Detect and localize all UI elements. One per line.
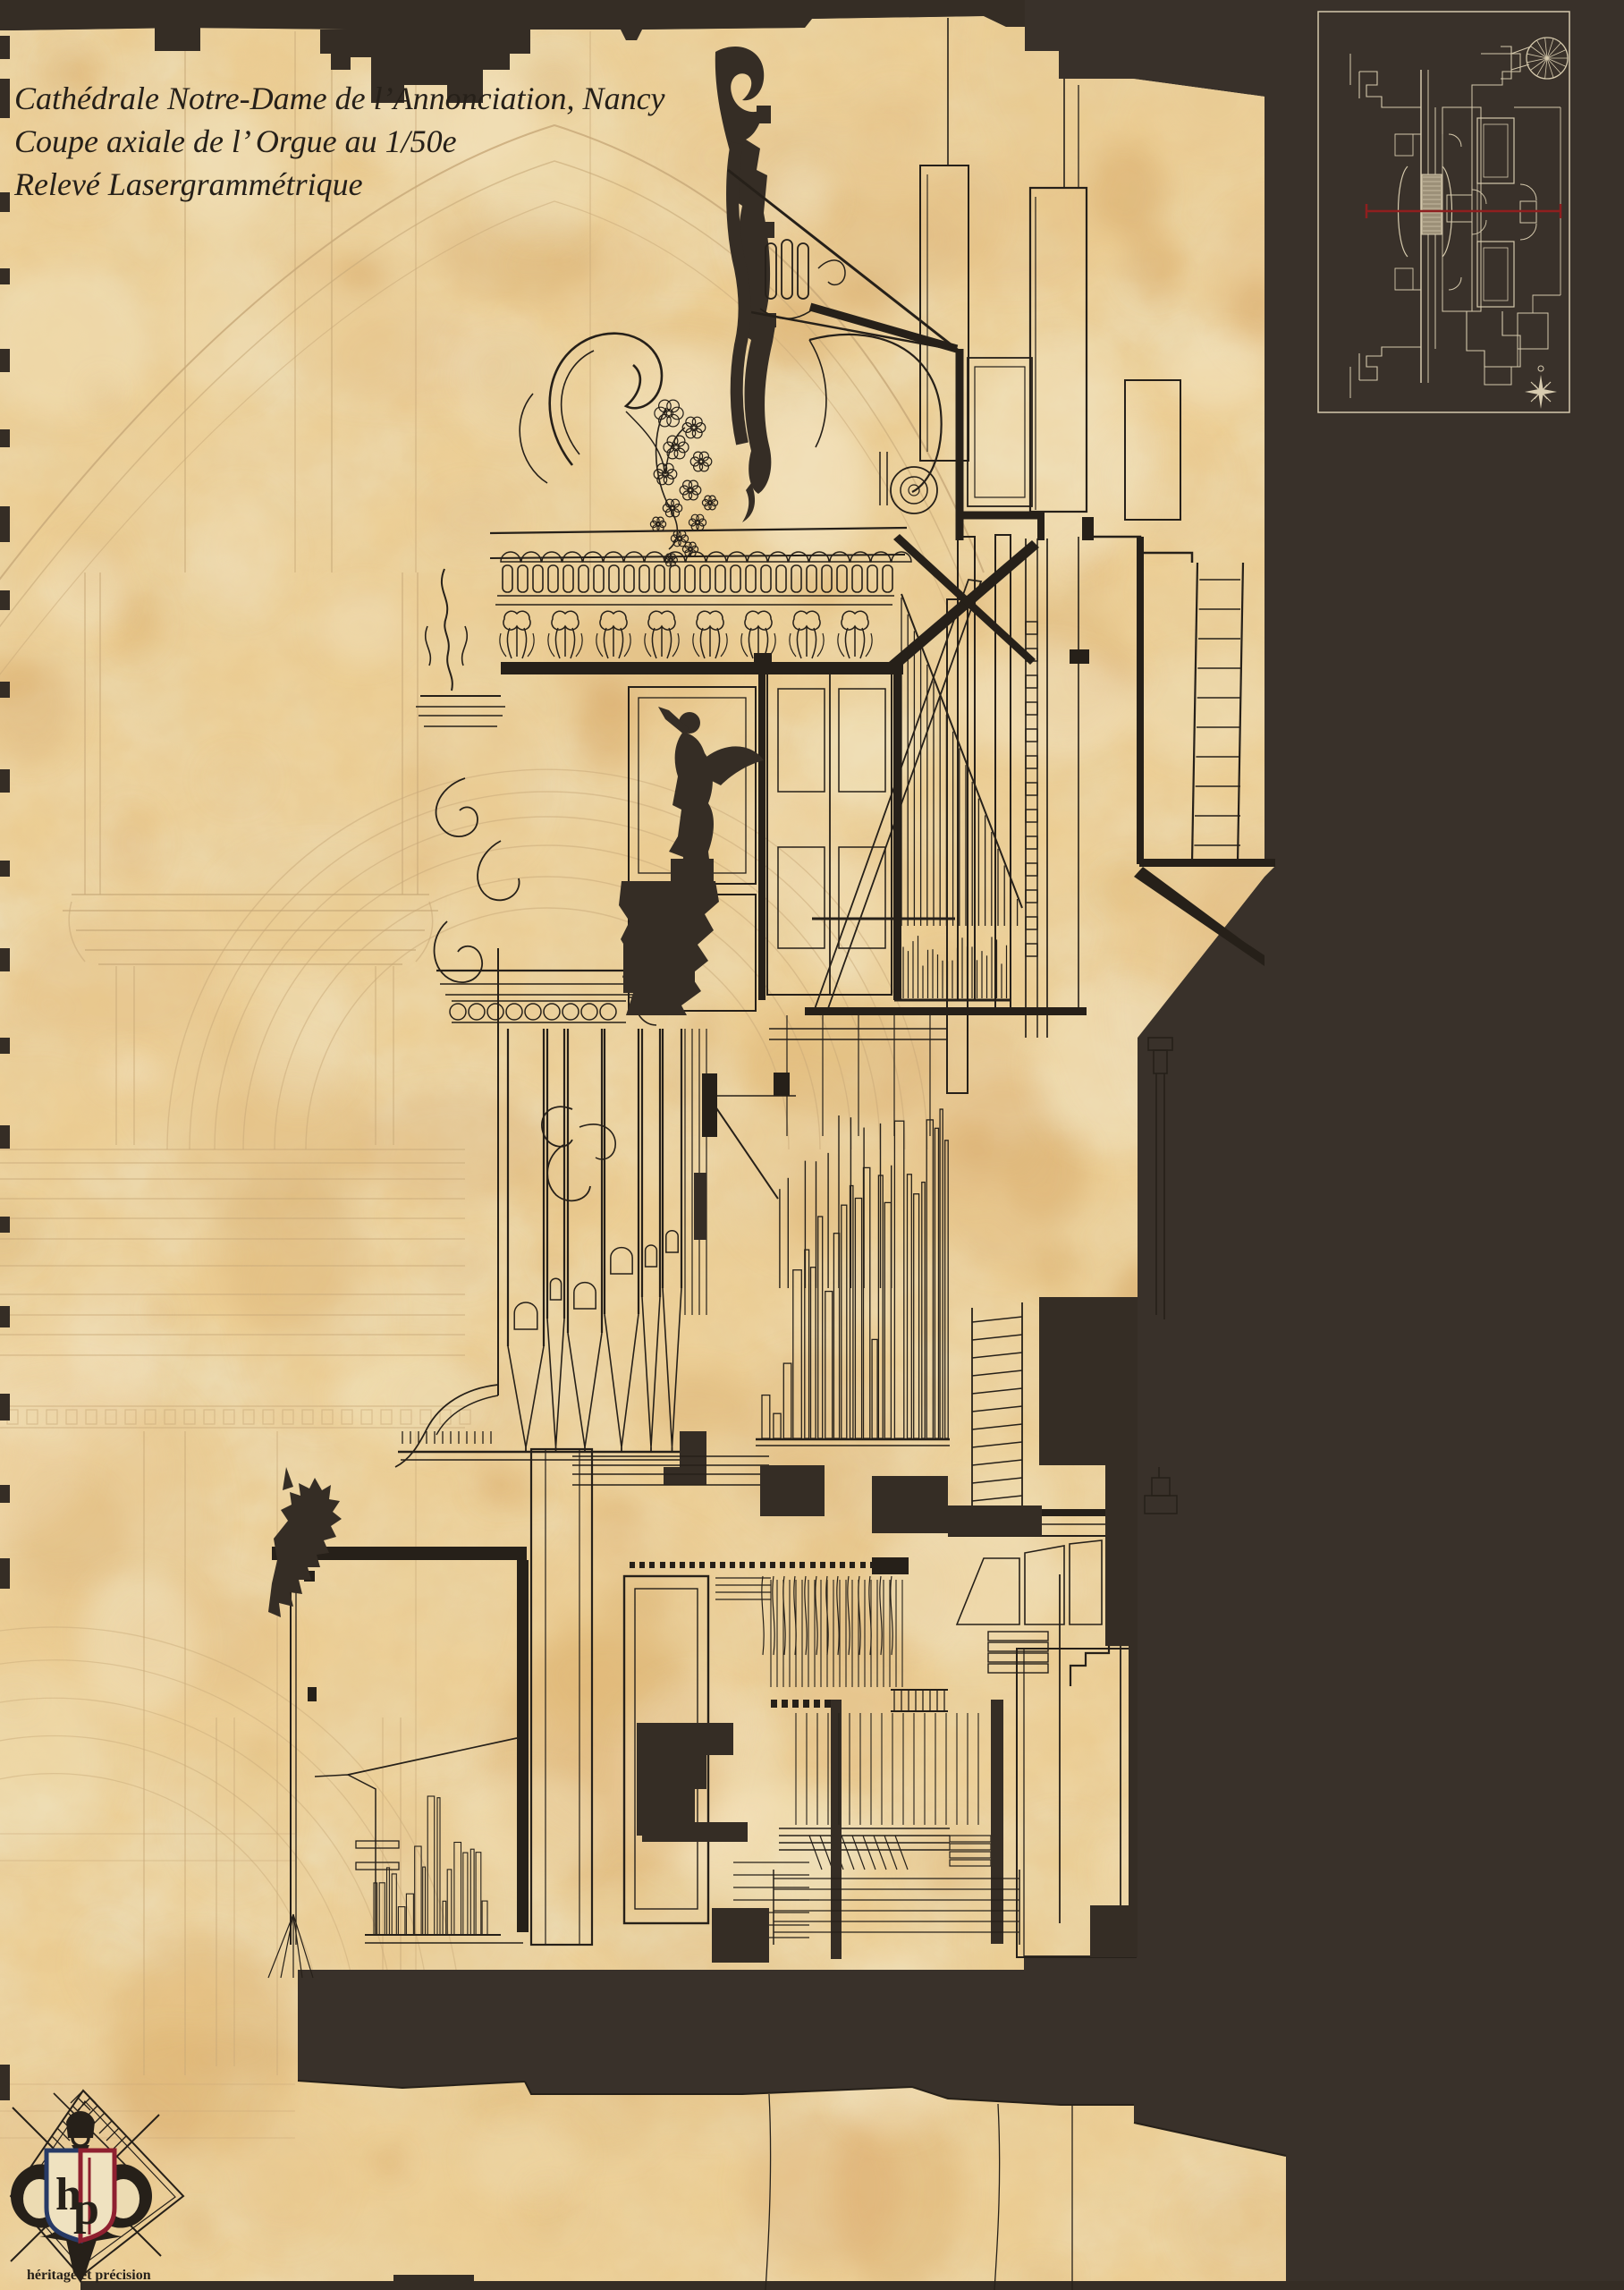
svg-text:Coupe axiale de l’ Orgue au 1/: Coupe axiale de l’ Orgue au 1/50e [14,123,457,159]
svg-text:Cathédrale Notre-Dame de l’An: Cathédrale Notre-Dame de l’Annonciation,… [14,81,665,116]
svg-text:héritage et précision: héritage et précision [27,2268,151,2283]
svg-text:Relevé Lasergrammétrique: Relevé Lasergrammétrique [13,166,363,202]
svg-text:p: p [73,2184,99,2235]
